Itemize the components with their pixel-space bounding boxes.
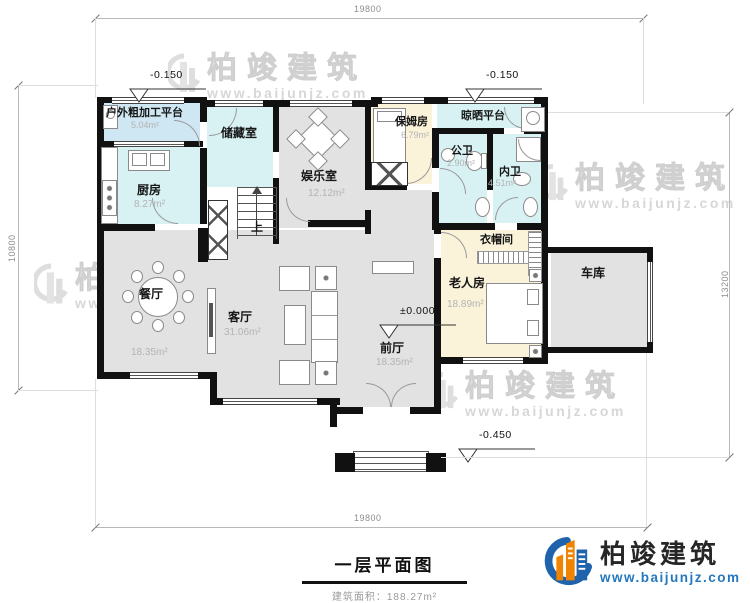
coffee-table [284, 305, 306, 345]
watermark-brand-text: 柏竣建筑 [575, 162, 736, 195]
dimension-line-top [95, 18, 643, 19]
extension-line [18, 390, 98, 391]
building-area-note: 建筑面积：188.27m² [302, 588, 467, 603]
room-label-private-bath: 内卫 [499, 163, 521, 179]
side-table [315, 361, 337, 385]
room-area-front-hall: 18.35m² [376, 357, 413, 368]
extension-line [441, 457, 729, 458]
elevation-marker-top-right: -0.150 [462, 62, 546, 102]
brand-name: 柏竣建筑 [600, 541, 741, 567]
room-area-outdoor-platform: 5.04m² [131, 120, 159, 130]
floor-plan-canvas: 柏竣建筑 www.baijunjz.com 柏竣建筑 www.baijunjz.… [0, 0, 750, 603]
side-table [315, 266, 337, 290]
room-label-garage: 车库 [581, 264, 605, 281]
watermark-url-text: www.baijunjz.com [575, 195, 736, 211]
nightstand [529, 269, 542, 282]
extension-line [95, 379, 96, 527]
watermark: 柏竣建筑 www.baijunjz.com [538, 162, 736, 212]
armchair [279, 360, 310, 385]
garage-door [647, 262, 653, 342]
basin-icon [523, 197, 538, 217]
room-label-dining: 餐厅 [139, 285, 163, 302]
wall [434, 230, 441, 234]
sink-bowl-icon [150, 153, 165, 166]
wall [432, 223, 495, 230]
elevation-marker-top-left: -0.150 [126, 62, 210, 102]
wall [545, 347, 653, 353]
wall [432, 128, 439, 168]
extension-line [646, 353, 647, 527]
window [215, 100, 263, 107]
wall [97, 97, 104, 379]
basin-icon [475, 197, 490, 217]
room-area-private-bath: 4.51m² [488, 178, 516, 188]
dimension-label-right: 13200 [720, 270, 730, 298]
sofa [311, 291, 338, 363]
extension-line [548, 112, 729, 113]
brand-url: www.baijunjz.com [600, 570, 741, 585]
dining-chair [152, 261, 164, 274]
porch-column [426, 453, 446, 472]
tv-icon [209, 303, 213, 337]
dimension-label-top: 19800 [354, 4, 382, 14]
structural-column [198, 228, 208, 262]
bed-pillow [527, 320, 539, 336]
room-area-nanny-room: 6.79m² [401, 130, 429, 140]
brand-text-block: 柏竣建筑 www.baijunjz.com [600, 541, 741, 585]
dimension-label-left: 10800 [7, 234, 17, 262]
window [463, 357, 523, 364]
wall [545, 247, 653, 253]
extension-line [95, 18, 96, 98]
room-label-outdoor-platform: 户外粗加工平台 [106, 104, 183, 120]
window [130, 372, 198, 379]
wall [410, 407, 441, 414]
room-label-drying-platform: 晾晒平台 [461, 107, 505, 123]
room-area-kitchen: 8.27m² [134, 199, 165, 210]
room-label-elder-room: 老人房 [449, 274, 485, 291]
wardrobe [371, 162, 408, 186]
title-block: 一层平面图 建筑面积：188.27m² [302, 551, 467, 603]
wall [200, 148, 207, 224]
watermark-brand-text: 柏竣建筑 [465, 370, 626, 403]
room-fill-corridor [371, 190, 432, 234]
room-label-storage: 储藏室 [221, 124, 257, 141]
dimension-line-bottom [95, 527, 647, 528]
dining-chair [182, 290, 194, 303]
watermark-url-text: www.baijunjz.com [207, 85, 368, 101]
closet-rod [477, 251, 531, 264]
dining-chair [131, 270, 143, 283]
watermark-text-block: 柏竣建筑 www.baijunjz.com [207, 52, 368, 101]
elevation-marker-main: ±0.000 [376, 298, 460, 338]
window [382, 97, 424, 104]
bed-pillow [527, 289, 539, 305]
drawing-title: 一层平面图 [302, 551, 467, 576]
dimension-label-bottom: 19800 [354, 513, 382, 523]
brand-logo-icon [540, 534, 592, 592]
porch-steps [353, 451, 429, 472]
title-underline [302, 581, 467, 584]
entry-cabinet [372, 261, 414, 274]
room-area-dining: 18.35m² [131, 347, 168, 358]
room-label-public-bath: 公卫 [451, 142, 473, 158]
stairs-up-label: 上 [247, 218, 267, 235]
wall [432, 128, 504, 134]
elevation-value: -0.150 [486, 69, 519, 81]
washing-machine-drum [526, 111, 540, 125]
wall [308, 220, 371, 227]
dimension-line-left [18, 85, 19, 390]
extension-line [18, 85, 98, 86]
room-label-game-room: 娱乐室 [301, 167, 337, 184]
room-label-kitchen: 厨房 [137, 181, 161, 198]
wall [97, 224, 155, 231]
armchair [279, 266, 310, 291]
elevation-value: ±0.000 [400, 305, 435, 317]
elevation-value: -0.450 [479, 429, 512, 441]
stove-icon [102, 180, 117, 216]
wall [330, 398, 337, 414]
toilet-tank [481, 153, 487, 169]
wall [434, 357, 441, 414]
room-area-game-room: 12.12m² [308, 188, 345, 199]
elevation-marker-entrance: -0.450 [455, 422, 539, 462]
watermark-brand-text: 柏竣建筑 [207, 52, 368, 85]
watermark-text-block: 柏竣建筑 www.baijunjz.com [465, 370, 626, 419]
wall [273, 100, 279, 152]
watermark-text-block: 柏竣建筑 www.baijunjz.com [575, 162, 736, 211]
dining-chair [152, 319, 164, 332]
room-label-nanny-room: 保姆房 [395, 113, 428, 129]
window [290, 100, 352, 107]
sink-bowl-icon [132, 153, 147, 166]
extension-line [643, 18, 644, 104]
room-label-cloakroom: 衣帽间 [480, 231, 513, 247]
wall [210, 372, 217, 405]
brand-logo: 柏竣建筑 www.baijunjz.com [540, 534, 741, 592]
dining-chair [122, 290, 134, 303]
room-area-public-bath: 2.90m² [447, 158, 475, 168]
porch-column [335, 453, 355, 472]
dining-chair [173, 270, 185, 283]
structural-column-hatch [208, 200, 228, 260]
window [223, 398, 317, 405]
nightstand [529, 345, 542, 358]
wall [517, 223, 548, 230]
watermark: 柏竣建筑 www.baijunjz.com [428, 370, 626, 420]
brand-watermark-icon [34, 262, 68, 316]
room-label-front-hall: 前厅 [380, 339, 404, 356]
elevation-value: -0.150 [150, 69, 183, 81]
dining-chair [131, 311, 143, 324]
dining-chair [173, 311, 185, 324]
stairs-arrow-head [252, 186, 262, 194]
watermark-url-text: www.baijunjz.com [465, 403, 626, 419]
room-area-living: 31.06m² [224, 327, 261, 338]
room-label-living: 客厅 [228, 308, 252, 325]
